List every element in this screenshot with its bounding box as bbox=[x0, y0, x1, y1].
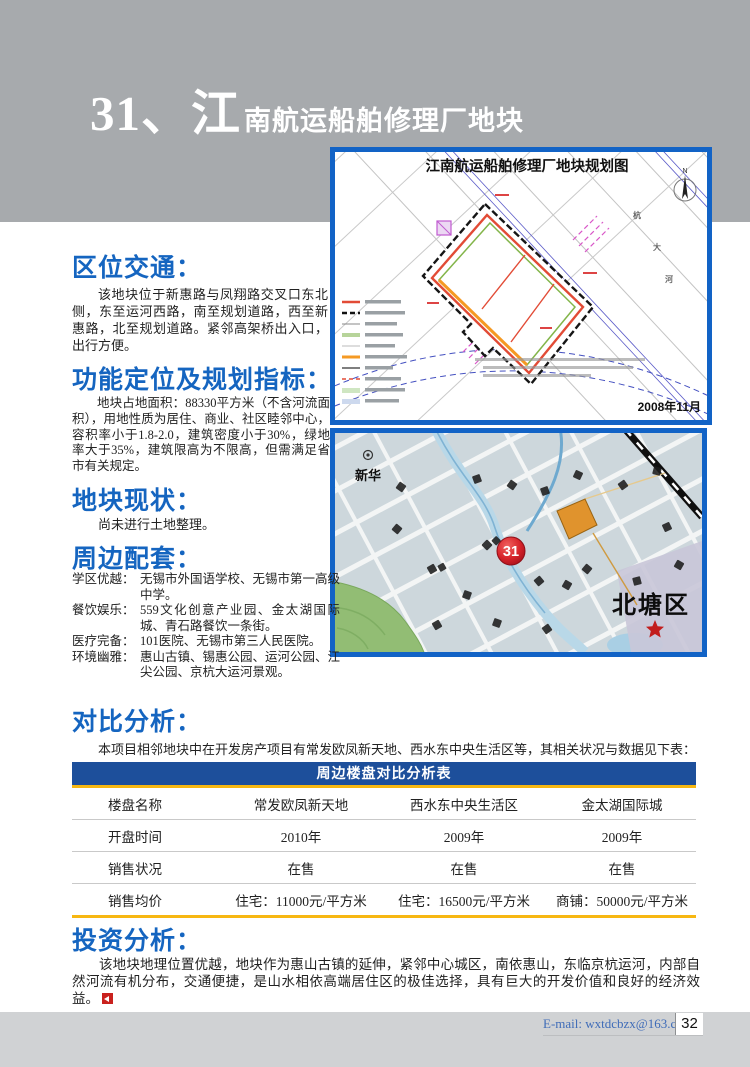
svg-text:河: 河 bbox=[665, 274, 673, 284]
planning-map-title: 江南航运船舶修理厂地块规划图 bbox=[426, 157, 629, 175]
table-cell: 在售 bbox=[380, 858, 548, 878]
section-body-status: 尚未进行土地整理。 bbox=[72, 514, 328, 533]
legend-text-bars bbox=[365, 300, 407, 403]
item-label: 医疗完备： bbox=[72, 634, 140, 650]
table-cell: 在售 bbox=[548, 858, 696, 878]
item-text: 101医院、无锡市第三人民医院。 bbox=[140, 634, 340, 650]
document-page: 31、江 南航运船舶修理厂地块 bbox=[0, 0, 750, 1067]
section-title-comparison: 对比分析： bbox=[72, 702, 202, 738]
item-label: 学区优越： bbox=[72, 572, 140, 603]
table-title: 周边楼盘对比分析表 bbox=[72, 762, 696, 788]
table-header-cell: 楼盘名称 bbox=[72, 794, 222, 814]
section-title-location: 区位交通： bbox=[72, 248, 202, 284]
list-item: 餐饮娱乐： 559文化创意产业园、金太湖国际城、青石路餐饮一条街。 bbox=[72, 603, 340, 634]
page-title-number: 31、江 bbox=[90, 74, 241, 145]
item-text: 559文化创意产业园、金太湖国际城、青石路餐饮一条街。 bbox=[140, 603, 340, 634]
table-cell: 2010年 bbox=[222, 826, 380, 846]
section-body-location: 该地块位于新惠路与凤翔路交叉口东北侧，东至运河西路，南至规划道路，西至新惠路，北… bbox=[72, 286, 328, 354]
end-mark-icon bbox=[102, 993, 113, 1004]
item-label: 餐饮娱乐： bbox=[72, 603, 140, 634]
svg-text:N: N bbox=[682, 168, 687, 175]
list-item: 学区优越： 无锡市外国语学校、无锡市第一高级中学。 bbox=[72, 572, 340, 603]
table-cell: 住宅：16500元/平方米 bbox=[380, 890, 548, 910]
location-map-graphic: 新华 北塘区 31 bbox=[335, 433, 702, 652]
section-title-investment: 投资分析： bbox=[72, 921, 202, 957]
svg-text:大: 大 bbox=[653, 242, 661, 252]
section-body-function: 地块占地面积：88330平方米（不含河流面积），用地性质为居住、商业、社区睦邻中… bbox=[72, 396, 330, 475]
section-title-function: 功能定位及规划指标： bbox=[72, 360, 332, 396]
table-header-cell: 常发欧凤新天地 bbox=[222, 794, 380, 814]
canal-labels: 杭 大 河 bbox=[633, 210, 673, 284]
planning-map-graphic: 杭 大 河 bbox=[335, 152, 707, 420]
page-number: 32 bbox=[675, 1013, 703, 1035]
item-label: 环境幽雅： bbox=[72, 650, 140, 681]
section-body-investment: 该地块地理位置优越，地块作为惠山古镇的延伸，紧邻中心城区，南依惠山，东临京杭运河… bbox=[72, 956, 700, 1007]
table-row: 开盘时间 2010年 2009年 2009年 bbox=[72, 820, 696, 852]
table-header-row: 楼盘名称 常发欧凤新天地 西水东中央生活区 金太湖国际城 bbox=[72, 788, 696, 820]
table-row: 销售均价 住宅：11000元/平方米 住宅：16500元/平方米 商铺：5000… bbox=[72, 884, 696, 918]
table-header-cell: 西水东中央生活区 bbox=[380, 794, 548, 814]
footer-email-link[interactable]: E-mail: wxtdcbzx@163.com bbox=[543, 1016, 693, 1032]
item-text: 无锡市外国语学校、无锡市第一高级中学。 bbox=[140, 572, 340, 603]
table-cell: 开盘时间 bbox=[72, 826, 222, 846]
table-cell: 2009年 bbox=[380, 826, 548, 846]
place-label: 新华 bbox=[355, 468, 381, 483]
list-item: 医疗完备： 101医院、无锡市第三人民医院。 bbox=[72, 634, 340, 650]
map-notes-bars bbox=[475, 358, 645, 377]
parcel-marker: 31 bbox=[497, 537, 525, 565]
svg-text:杭: 杭 bbox=[633, 210, 641, 220]
planning-map: 杭 大 河 bbox=[330, 147, 712, 425]
comparison-table: 周边楼盘对比分析表 楼盘名称 常发欧凤新天地 西水东中央生活区 金太湖国际城 开… bbox=[72, 762, 696, 918]
map-legend bbox=[342, 300, 407, 404]
section-title-status: 地块现状： bbox=[72, 481, 202, 517]
table-row: 销售状况 在售 在售 在售 bbox=[72, 852, 696, 884]
table-header-cell: 金太湖国际城 bbox=[548, 794, 696, 814]
table-cell: 商铺：50000元/平方米 bbox=[548, 890, 696, 910]
page-title: 31、江 南航运船舶修理厂地块 bbox=[90, 74, 524, 145]
table-cell: 销售状况 bbox=[72, 858, 222, 878]
comparison-intro: 本项目相邻地块中在开发房产项目有常发欧凤新天地、西水东中央生活区等，其相关状况与… bbox=[72, 739, 700, 758]
table-cell: 销售均价 bbox=[72, 890, 222, 910]
list-item: 环境幽雅： 惠山古镇、锡惠公园、运河公园、江尖公园、京杭大运河景观。 bbox=[72, 650, 340, 681]
item-text: 惠山古镇、锡惠公园、运河公园、江尖公园、京杭大运河景观。 bbox=[140, 650, 340, 681]
table-cell: 住宅：11000元/平方米 bbox=[222, 890, 380, 910]
parcel-marker-number: 31 bbox=[503, 544, 519, 560]
district-label: 北塘区 bbox=[612, 591, 690, 619]
planning-map-date: 2008年11月 bbox=[638, 399, 701, 414]
investment-text: 该地块地理位置优越，地块作为惠山古镇的延伸，紧邻中心城区，南依惠山，东临京杭运河… bbox=[72, 957, 700, 1006]
table-cell: 2009年 bbox=[548, 826, 696, 846]
table-cell: 在售 bbox=[222, 858, 380, 878]
surroundings-list: 学区优越： 无锡市外国语学校、无锡市第一高级中学。 餐饮娱乐： 559文化创意产… bbox=[72, 572, 340, 681]
section-title-surroundings: 周边配套： bbox=[72, 539, 202, 575]
footer-divider bbox=[543, 1035, 703, 1036]
location-map: 新华 北塘区 31 bbox=[330, 428, 707, 657]
page-title-text: 南航运船舶修理厂地块 bbox=[244, 99, 524, 138]
